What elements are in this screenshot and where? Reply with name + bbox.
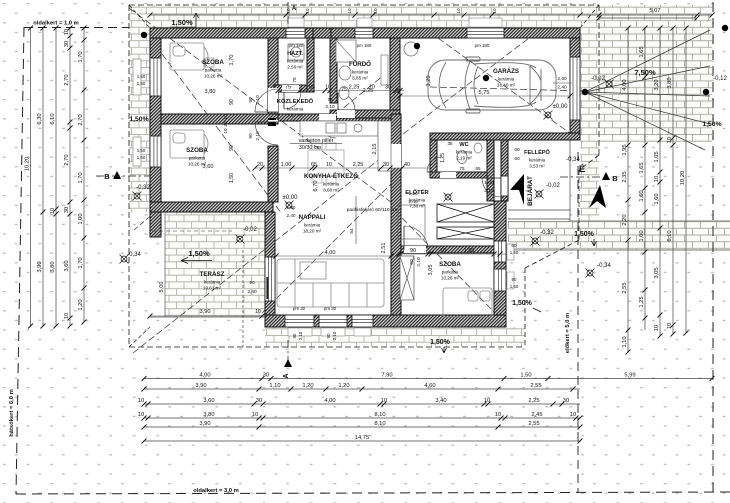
svg-text:-0,02: -0,02 — [243, 227, 257, 233]
svg-text:10,26 m²: 10,26 m² — [441, 276, 460, 281]
svg-text:10: 10 — [456, 8, 461, 14]
svg-text:B: B — [104, 172, 110, 181]
svg-text:60: 60 — [514, 147, 520, 153]
svg-text:oldalkert = 3,0 m: oldalkert = 3,0 m — [193, 488, 239, 494]
svg-text:2,35: 2,35 — [622, 171, 628, 182]
svg-text:-0,34: -0,34 — [597, 263, 611, 269]
svg-text:65: 65 — [475, 166, 481, 171]
svg-text:kerámia: kerámia — [498, 77, 515, 82]
svg-text:KÖZLEKEDŐ: KÖZLEKEDŐ — [277, 98, 314, 105]
svg-text:padlásfeljáró 60/110 cm: padlásfeljáró 60/110 cm — [347, 207, 398, 213]
svg-text:2,40: 2,40 — [557, 85, 567, 91]
svg-text:1,50%: 1,50% — [574, 231, 595, 238]
svg-text:±0,00: ±0,00 — [283, 195, 299, 201]
svg-text:10: 10 — [484, 398, 490, 404]
svg-text:2,10: 2,10 — [255, 95, 261, 105]
svg-text:2,25: 2,25 — [528, 398, 539, 404]
svg-text:65: 65 — [311, 162, 317, 168]
svg-text:1,70: 1,70 — [78, 51, 84, 62]
svg-text:90: 90 — [326, 333, 331, 338]
svg-text:1,20: 1,20 — [302, 383, 313, 389]
svg-text:18,20 m²: 18,20 m² — [303, 229, 322, 234]
svg-text:1,50: 1,50 — [137, 148, 146, 153]
svg-text:60: 60 — [514, 156, 520, 162]
svg-text:85: 85 — [309, 85, 315, 91]
svg-text:3,90: 3,90 — [200, 309, 211, 315]
svg-text:1,25: 1,25 — [440, 153, 446, 163]
svg-text:hátsókert = 6,0 m: hátsókert = 6,0 m — [9, 389, 15, 437]
svg-text:18,40 m²: 18,40 m² — [497, 83, 516, 88]
svg-text:6,10: 6,10 — [667, 230, 673, 241]
svg-text:kerámia: kerámia — [204, 280, 221, 285]
svg-text:FÜRDŐ: FÜRDŐ — [349, 61, 371, 68]
svg-text:3,05: 3,05 — [428, 265, 434, 276]
svg-text:1,20: 1,20 — [408, 191, 418, 197]
svg-text:2,51: 2,51 — [381, 243, 387, 254]
svg-text:±0,00: ±0,00 — [553, 104, 569, 110]
svg-text:75: 75 — [459, 166, 465, 171]
svg-text:10: 10 — [252, 412, 258, 418]
svg-text:2,10: 2,10 — [416, 257, 422, 267]
svg-text:3,90: 3,90 — [37, 261, 43, 272]
svg-text:10: 10 — [64, 313, 70, 319]
svg-text:4,60: 4,60 — [424, 383, 435, 389]
svg-text:A: A — [283, 373, 290, 378]
svg-text:30: 30 — [563, 398, 569, 404]
svg-text:SZOBA: SZOBA — [439, 261, 461, 268]
svg-text:előkert = 5,0 m: előkert = 5,0 m — [565, 313, 571, 353]
svg-text:vasbeton pillér: vasbeton pillér — [299, 138, 334, 144]
svg-text:BEJÁRAT: BEJÁRAT — [525, 176, 534, 206]
svg-text:1,00: 1,00 — [639, 230, 645, 241]
svg-text:3,90: 3,90 — [195, 383, 206, 389]
svg-text:pm 180: pm 180 — [475, 43, 490, 48]
svg-text:pm 180: pm 180 — [357, 43, 372, 48]
svg-text:2,10: 2,10 — [484, 188, 494, 194]
svg-text:2,15: 2,15 — [372, 144, 378, 155]
svg-text:10: 10 — [223, 128, 228, 134]
svg-text:1,50: 1,50 — [137, 74, 146, 79]
svg-text:10: 10 — [326, 162, 332, 168]
svg-text:75: 75 — [327, 97, 333, 103]
svg-text:14,75: 14,75 — [355, 435, 370, 441]
svg-text:1,10: 1,10 — [269, 383, 280, 389]
svg-text:10: 10 — [492, 8, 497, 14]
svg-text:90: 90 — [512, 277, 517, 282]
svg-text:2,70: 2,70 — [64, 74, 70, 85]
svg-text:kerámia: kerámia — [352, 70, 369, 75]
svg-text:2,55: 2,55 — [622, 282, 628, 293]
svg-text:10: 10 — [64, 29, 70, 35]
svg-text:10: 10 — [381, 398, 387, 404]
svg-text:10,20: 10,20 — [680, 171, 686, 186]
svg-text:75: 75 — [341, 87, 347, 93]
svg-text:1,85: 1,85 — [464, 248, 475, 254]
svg-text:10: 10 — [654, 325, 660, 331]
svg-text:10: 10 — [286, 8, 291, 14]
svg-text:5,67 m²: 5,67 m² — [287, 113, 303, 118]
svg-text:HÁZT.: HÁZT. — [287, 50, 303, 57]
svg-text:2,10: 2,10 — [255, 131, 261, 141]
svg-text:90: 90 — [248, 97, 254, 103]
svg-text:90: 90 — [409, 259, 415, 265]
svg-text:6,30: 6,30 — [37, 113, 43, 124]
svg-text:20: 20 — [223, 121, 228, 127]
svg-text:kerámia: kerámia — [287, 107, 304, 112]
svg-text:30: 30 — [64, 41, 70, 47]
svg-text:2,40: 2,40 — [247, 289, 257, 295]
svg-text:4,00: 4,00 — [622, 79, 628, 90]
svg-text:90: 90 — [248, 133, 254, 139]
svg-text:90: 90 — [229, 99, 235, 105]
svg-text:10: 10 — [138, 398, 144, 404]
svg-text:parketta: parketta — [442, 270, 459, 275]
svg-text:2,55: 2,55 — [528, 421, 539, 427]
svg-text:3,80: 3,80 — [203, 412, 214, 418]
svg-text:-0,32: -0,32 — [136, 185, 150, 191]
svg-text:10: 10 — [223, 114, 228, 120]
svg-text:GARÁZS: GARÁZS — [493, 68, 519, 75]
svg-text:3,60: 3,60 — [203, 164, 214, 170]
svg-text:KONYHA-ÉTKEZŐ: KONYHA-ÉTKEZŐ — [304, 172, 358, 180]
svg-text:NAPPALI: NAPPALI — [299, 214, 326, 221]
svg-text:8,60 m²: 8,60 m² — [323, 188, 339, 193]
svg-text:TERASZ: TERASZ — [200, 271, 225, 278]
svg-text:1,50%: 1,50% — [188, 249, 210, 258]
svg-text:6,10: 6,10 — [50, 113, 56, 124]
svg-text:1,00: 1,00 — [484, 180, 494, 186]
svg-text:1,70: 1,70 — [229, 55, 235, 66]
svg-text:2,70: 2,70 — [78, 114, 84, 125]
svg-text:5,07: 5,07 — [649, 8, 660, 14]
svg-text:90: 90 — [249, 280, 255, 286]
svg-text:parketta: parketta — [189, 156, 206, 161]
svg-text:1,50: 1,50 — [520, 372, 531, 378]
svg-text:2,25: 2,25 — [363, 88, 374, 94]
svg-text:10: 10 — [50, 208, 56, 214]
svg-text:90: 90 — [229, 145, 235, 151]
svg-text:pm 30: pm 30 — [293, 306, 306, 311]
svg-text:1,60: 1,60 — [639, 190, 645, 201]
svg-text:-0,34: -0,34 — [127, 252, 141, 258]
svg-text:1,50: 1,50 — [510, 250, 519, 255]
svg-text:75: 75 — [292, 77, 298, 83]
svg-text:10: 10 — [138, 412, 144, 418]
svg-text:10: 10 — [255, 309, 261, 315]
svg-text:1,50: 1,50 — [137, 155, 146, 160]
svg-text:É: É — [579, 164, 585, 175]
svg-text:54: 54 — [349, 228, 355, 234]
svg-text:kerámia: kerámia — [456, 150, 473, 155]
svg-text:3,53 m²: 3,53 m² — [529, 164, 545, 169]
svg-text:10: 10 — [347, 8, 352, 14]
svg-text:30: 30 — [263, 372, 269, 378]
svg-text:19,61 m²: 19,61 m² — [203, 286, 222, 291]
svg-text:3,40: 3,40 — [435, 398, 446, 404]
svg-text:parketta: parketta — [205, 68, 222, 73]
svg-text:7,90: 7,90 — [381, 372, 392, 378]
svg-text:10: 10 — [570, 412, 576, 418]
svg-text:1,70: 1,70 — [78, 257, 84, 268]
svg-text:1,10: 1,10 — [622, 336, 628, 347]
svg-text:SZOBA: SZOBA — [202, 59, 224, 66]
svg-text:2,10: 2,10 — [298, 331, 303, 340]
svg-text:-0,12: -0,12 — [713, 76, 727, 82]
svg-text:90: 90 — [292, 333, 297, 338]
svg-text:1,70: 1,70 — [78, 172, 84, 183]
svg-text:5,75: 5,75 — [479, 90, 490, 96]
svg-text:10,26 m²: 10,26 m² — [204, 74, 223, 79]
svg-text:2,56 m²: 2,56 m² — [287, 65, 303, 70]
svg-text:kerámia: kerámia — [304, 223, 321, 228]
svg-text:10: 10 — [667, 323, 673, 329]
svg-text:10: 10 — [440, 248, 446, 254]
svg-text:2,20: 2,20 — [622, 214, 628, 225]
svg-text:1,00: 1,00 — [281, 162, 292, 168]
svg-text:30: 30 — [385, 85, 391, 91]
svg-text:10: 10 — [325, 85, 331, 91]
svg-text:2,50: 2,50 — [557, 76, 567, 82]
svg-text:1,60: 1,60 — [654, 193, 660, 204]
svg-text:3,05: 3,05 — [654, 267, 660, 278]
svg-text:10: 10 — [654, 176, 660, 182]
svg-text:2,70: 2,70 — [64, 154, 70, 165]
svg-text:8,10: 8,10 — [374, 421, 385, 427]
svg-text:1,05: 1,05 — [654, 151, 660, 162]
svg-text:3,80: 3,80 — [50, 261, 56, 272]
svg-text:-0,32: -0,32 — [540, 230, 554, 236]
svg-text:3,60: 3,60 — [203, 398, 214, 404]
svg-text:2,45: 2,45 — [531, 412, 542, 418]
svg-text:5,99: 5,99 — [624, 372, 635, 378]
svg-text:kerámia: kerámia — [287, 59, 304, 64]
svg-text:WC: WC — [459, 142, 468, 148]
svg-text:SZOBA: SZOBA — [186, 147, 208, 154]
svg-text:1,20: 1,20 — [78, 299, 84, 310]
svg-text:1,50%: 1,50% — [702, 121, 721, 128]
svg-text:2,40: 2,40 — [287, 213, 296, 218]
svg-text:2,19 m²: 2,19 m² — [456, 156, 472, 161]
svg-text:10: 10 — [305, 8, 310, 14]
svg-text:1,50%: 1,50% — [129, 116, 148, 123]
svg-text:6,70: 6,70 — [313, 181, 319, 192]
svg-text:10: 10 — [667, 137, 673, 143]
svg-text:35: 35 — [447, 141, 453, 146]
svg-text:1,20: 1,20 — [338, 383, 349, 389]
svg-text:FELLÉPŐ: FELLÉPŐ — [524, 148, 550, 156]
svg-text:1,00: 1,00 — [78, 213, 84, 224]
svg-text:3,20: 3,20 — [654, 79, 660, 90]
svg-text:3,80: 3,80 — [205, 89, 216, 95]
svg-text:pm 180: pm 180 — [289, 43, 304, 48]
svg-text:-0,02: -0,02 — [591, 76, 605, 82]
svg-text:30: 30 — [64, 207, 70, 213]
svg-text:3,20: 3,20 — [426, 76, 432, 87]
svg-text:2,25: 2,25 — [353, 162, 364, 168]
svg-text:4,00: 4,00 — [324, 398, 335, 404]
svg-text:1,50: 1,50 — [137, 81, 146, 86]
svg-text:5,00: 5,00 — [159, 282, 165, 293]
svg-text:2,10: 2,10 — [332, 331, 337, 340]
svg-text:1,50%: 1,50% — [512, 300, 533, 307]
svg-text:kerámia: kerámia — [529, 158, 546, 163]
svg-text:90: 90 — [410, 248, 416, 254]
svg-text:40: 40 — [404, 162, 410, 168]
svg-text:1.50%: 1.50% — [171, 18, 193, 27]
svg-text:A: A — [292, 6, 297, 12]
svg-text:2,10: 2,10 — [325, 104, 335, 110]
svg-text:8,10: 8,10 — [374, 412, 385, 418]
svg-text:1,65: 1,65 — [639, 46, 645, 57]
svg-text:1,50: 1,50 — [510, 284, 519, 289]
svg-text:10: 10 — [495, 412, 501, 418]
svg-text:2,55: 2,55 — [530, 383, 541, 389]
svg-text:75: 75 — [285, 85, 291, 91]
svg-text:3,60: 3,60 — [64, 260, 70, 271]
svg-text:10,20: 10,20 — [24, 157, 30, 172]
svg-text:2,40: 2,40 — [408, 199, 418, 205]
svg-text:20: 20 — [257, 162, 263, 168]
svg-text:3,90: 3,90 — [199, 421, 210, 427]
svg-text:60: 60 — [512, 243, 517, 248]
svg-text:5,85 m²: 5,85 m² — [352, 76, 368, 81]
svg-text:3,80: 3,80 — [667, 77, 673, 88]
svg-text:kerámia: kerámia — [323, 182, 340, 187]
svg-text:B: B — [612, 174, 618, 183]
svg-text:30: 30 — [383, 162, 389, 168]
svg-text:1,50%: 1,50% — [430, 339, 451, 346]
svg-text:1,25: 1,25 — [639, 296, 645, 307]
svg-text:2,25: 2,25 — [349, 85, 360, 91]
svg-text:-0,02: -0,02 — [546, 183, 560, 189]
svg-text:30/30 cm: 30/30 cm — [299, 145, 322, 151]
svg-text:pm 30: pm 30 — [324, 306, 337, 311]
svg-text:4,00: 4,00 — [199, 372, 210, 378]
svg-text:30: 30 — [256, 398, 262, 404]
svg-text:4,00: 4,00 — [325, 250, 336, 256]
svg-text:1,50: 1,50 — [229, 173, 235, 183]
svg-text:10: 10 — [373, 8, 378, 14]
svg-text:1,95: 1,95 — [622, 144, 628, 155]
svg-text:-0,34: -0,34 — [566, 157, 580, 163]
svg-text:1,65: 1,65 — [639, 162, 645, 173]
